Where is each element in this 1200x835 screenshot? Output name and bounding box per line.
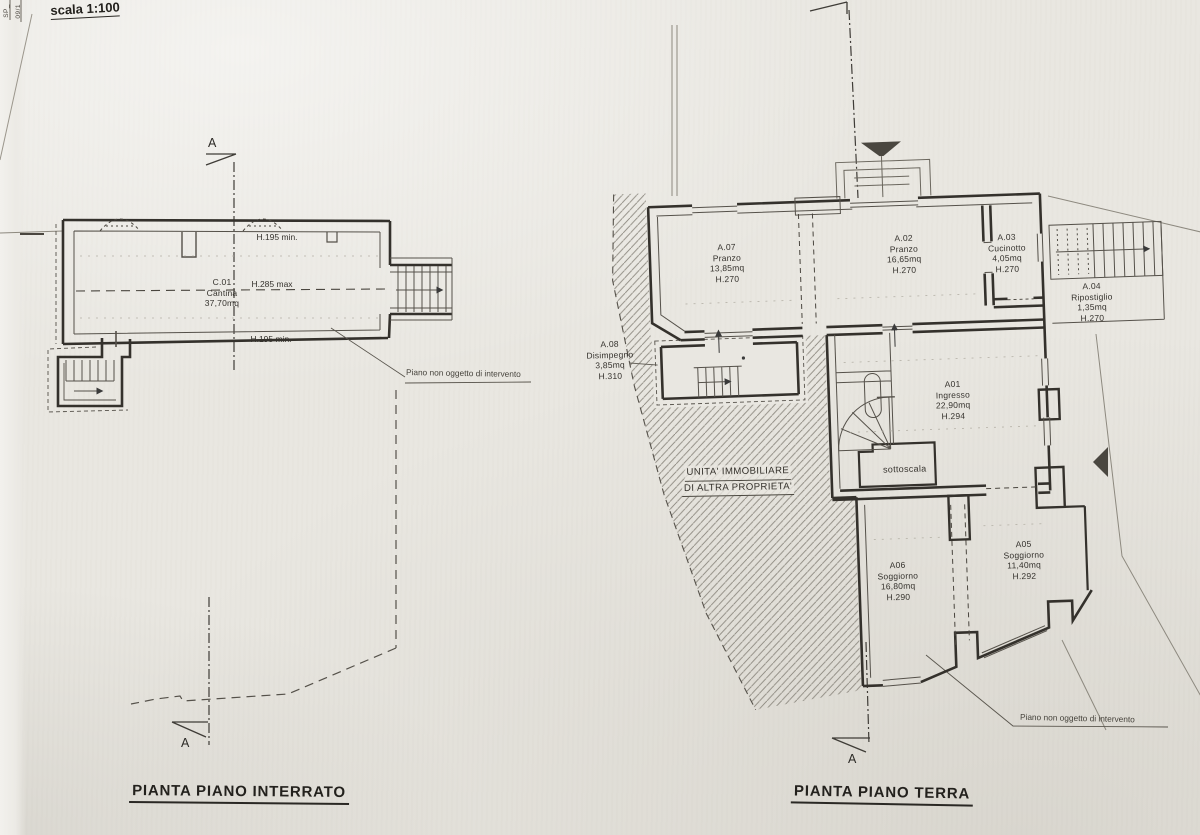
window-lines (883, 677, 921, 686)
section-flag-icon (832, 738, 870, 752)
direction-triangle-icon (1093, 447, 1108, 477)
room-area: 13,85mq (710, 263, 745, 274)
room-code: C.01 (205, 277, 239, 288)
height-annotation: H.195 min. (250, 334, 291, 344)
room-label-a02: A.02 Pranzo 16,65mq H.270 (886, 233, 922, 276)
window-lines (1044, 417, 1051, 445)
room-name: Cantina (205, 288, 239, 299)
other-property-line1: UNITA' IMMOBILIARE (684, 464, 791, 481)
room-height: H.270 (710, 273, 745, 284)
room-label-cantina: C.01 Cantina 37,70mq (205, 277, 239, 309)
room-name: Disimpegno (586, 349, 633, 361)
room-area: 22,90mq (936, 400, 971, 411)
room-area: 11,40mq (1004, 560, 1045, 572)
room-label-a05: A05 Soggiorno 11,40mq H.292 (1003, 538, 1045, 581)
height-annotation: H.195 min. (256, 232, 297, 242)
stair-direction-arrow-icon (1056, 249, 1149, 252)
room-area: 16,65mq (887, 254, 922, 265)
room-height: H.270 (1072, 312, 1114, 324)
height-annotation: H.285 max (251, 279, 292, 289)
room-height: H.292 (1004, 570, 1045, 582)
stairs-winding-ingresso (835, 333, 897, 451)
section-letter-bottom: A (181, 736, 189, 750)
terra-building (608, 132, 1177, 714)
room-label-a04: A.04 Ripostiglio 1,35mq H.270 (1071, 280, 1114, 323)
room-label-a01: A01 Ingresso 22,90mq H.294 (935, 379, 971, 422)
door-threshold (882, 326, 912, 330)
room-height: H.310 (587, 370, 634, 382)
room-area: 1,35mq (1071, 302, 1113, 314)
room-label-a08: A.08 Disimpegno 3,85mq H.310 (586, 338, 634, 382)
room-label-a06: A06 Soggiorno 16,80mq H.290 (877, 559, 919, 602)
section-flag-icon (206, 154, 236, 165)
room-height: H.270 (887, 264, 922, 275)
room-height: H.290 (878, 591, 919, 603)
section-letter-top: A (208, 136, 216, 150)
room-area: 16,80mq (878, 581, 919, 593)
room-height: H.270 (988, 263, 1026, 275)
room-area: 4,05mq (988, 253, 1026, 265)
window-lines (1037, 234, 1043, 262)
sottoscala-label: sottoscala (883, 463, 927, 474)
stairs-cantina-exit (396, 266, 446, 312)
section-letter-bottom: A (848, 752, 856, 766)
downpipe-funnel-icon (861, 141, 901, 156)
room-area: 37,70mq (205, 298, 239, 309)
other-property-line2: DI ALTRA PROPRIETA' (682, 480, 794, 497)
room-label-a03: A.03 Cucinotto 4,05mq H.270 (988, 232, 1027, 275)
section-flag-icon (810, 2, 847, 14)
scan-edge-marks (0, 0, 63, 234)
section-flag-icon (172, 722, 208, 737)
plan-title-interrato: PIANTA PIANO INTERRATO (129, 782, 349, 805)
door-arrow-icon (894, 325, 895, 347)
floor-plan-drawing (0, 0, 1200, 835)
door-threshold (850, 201, 918, 207)
plan-title-terra: PIANTA PIANO TERRA (791, 782, 973, 806)
entrance-canopy (835, 154, 930, 198)
scanned-floor-plan-sheet: SP_ 09/1 (0, 0, 1200, 835)
note-not-subject: Piano non oggetto di intervento (406, 367, 521, 379)
interrato-plan (48, 154, 531, 745)
window-lines (1042, 358, 1049, 385)
other-property-label: UNITA' IMMOBILIARE DI ALTRA PROPRIETA' (682, 464, 795, 497)
window-lines (692, 206, 737, 213)
stairs-basement-corner (66, 360, 114, 391)
stairs-external-east (1049, 221, 1163, 279)
interrato-walls (58, 220, 452, 406)
room-label-a07: A.07 Pranzo 13,85mq H.270 (709, 242, 745, 285)
room-height: H.294 (936, 410, 971, 421)
